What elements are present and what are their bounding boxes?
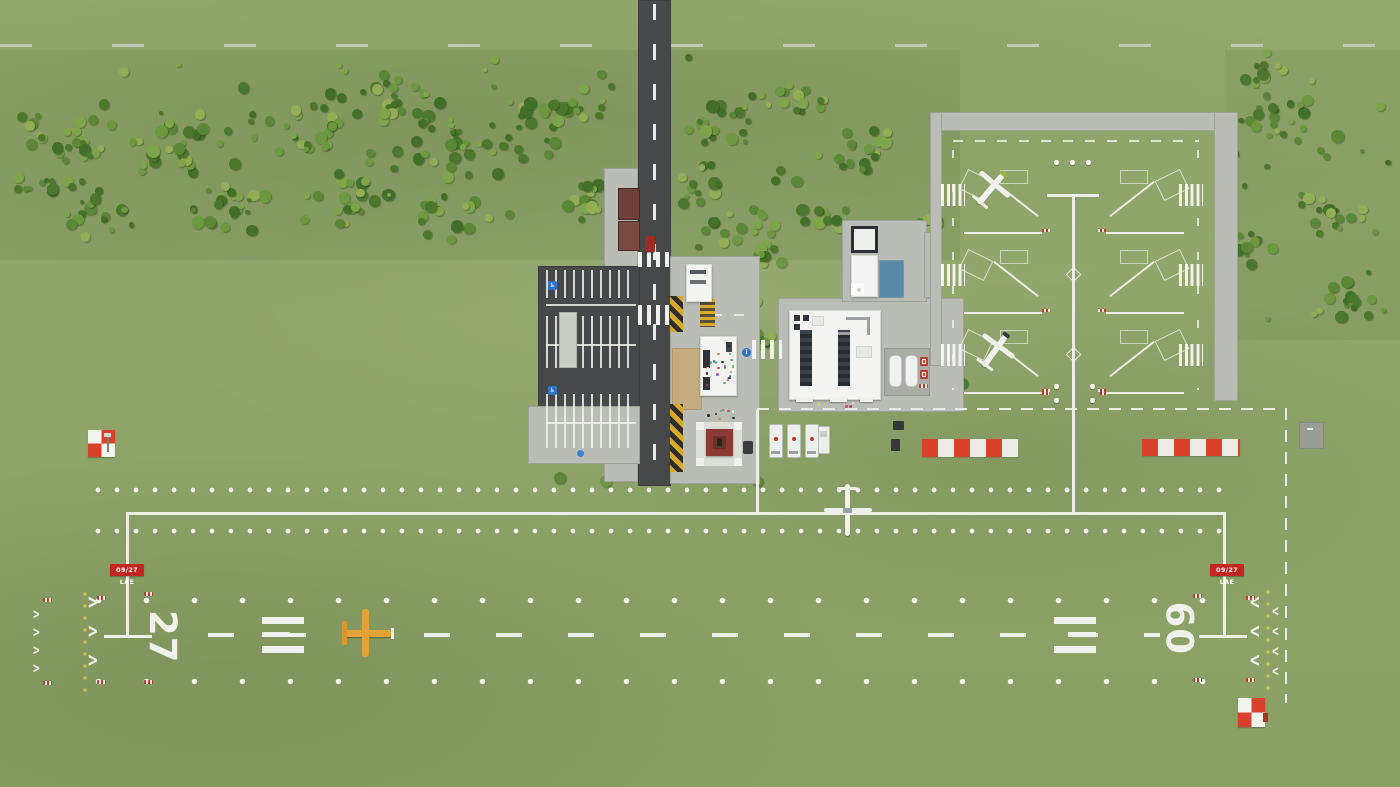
person xyxy=(717,367,720,370)
person xyxy=(732,365,735,368)
person xyxy=(723,382,726,385)
person xyxy=(730,371,733,374)
person xyxy=(852,402,855,405)
person xyxy=(710,361,713,364)
person xyxy=(849,405,852,408)
person xyxy=(732,417,735,420)
person xyxy=(706,384,709,387)
person xyxy=(707,367,710,370)
airport-map: ♿ ♿ i xyxy=(0,0,1400,787)
person xyxy=(706,372,709,375)
person xyxy=(718,418,721,421)
passengers xyxy=(0,0,1400,787)
person xyxy=(724,365,727,368)
person xyxy=(732,410,735,413)
person xyxy=(727,345,730,348)
person xyxy=(707,414,710,417)
person xyxy=(729,353,732,356)
person xyxy=(818,403,821,406)
person xyxy=(716,373,719,376)
person xyxy=(727,410,730,413)
person xyxy=(715,413,718,416)
person xyxy=(729,375,732,378)
person xyxy=(845,405,848,408)
person xyxy=(717,353,720,356)
person xyxy=(730,359,733,362)
person xyxy=(715,361,718,364)
